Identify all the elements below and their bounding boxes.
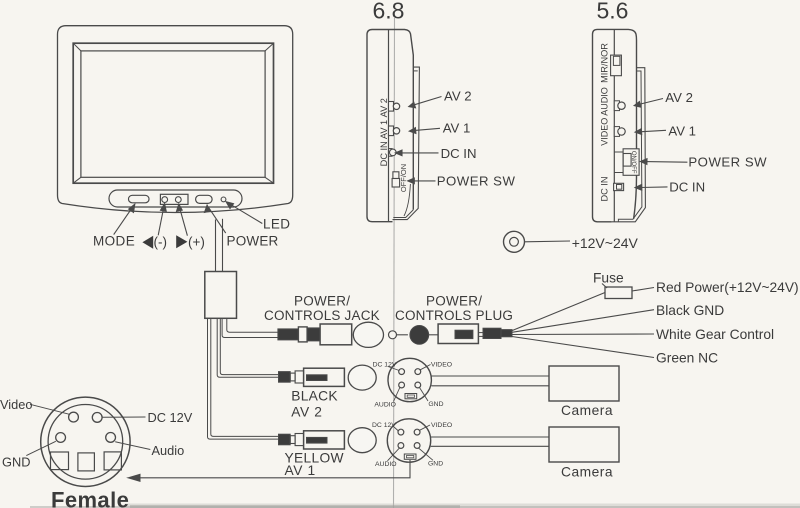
- svg-text:VIDEO AUDIO: VIDEO AUDIO: [600, 87, 610, 146]
- svg-text:AV 1: AV 1: [443, 121, 471, 136]
- svg-text:Camera: Camera: [561, 403, 613, 418]
- svg-text:AV 2: AV 2: [379, 98, 389, 117]
- svg-text:Female: Female: [51, 488, 129, 508]
- svg-text:AV 2: AV 2: [665, 90, 693, 105]
- svg-text:Audio: Audio: [152, 443, 185, 458]
- svg-text:Red Power(+12V~24V): Red Power(+12V~24V): [656, 280, 799, 295]
- svg-text:LED: LED: [263, 217, 290, 232]
- svg-text:Fuse: Fuse: [593, 271, 624, 286]
- svg-text:VIDEO: VIDEO: [431, 422, 452, 429]
- svg-text:AV 2: AV 2: [291, 404, 322, 419]
- svg-text:AV 1: AV 1: [285, 463, 316, 478]
- svg-text:CONTROLS JACK: CONTROLS JACK: [264, 308, 380, 323]
- svg-text:BLACK: BLACK: [291, 389, 338, 404]
- svg-text:+12V~24V: +12V~24V: [572, 235, 639, 251]
- svg-text:GND: GND: [2, 455, 30, 470]
- svg-text:DC 12V: DC 12V: [372, 422, 396, 429]
- svg-text:6.8: 6.8: [373, 0, 405, 24]
- svg-text:POWER/: POWER/: [426, 294, 482, 309]
- svg-text:DC IN: DC IN: [600, 176, 610, 201]
- svg-text:CONTROLS PLUG: CONTROLS PLUG: [395, 308, 513, 323]
- svg-text:OFF/ON: OFF/ON: [399, 164, 408, 192]
- svg-text:AUDIO: AUDIO: [374, 401, 396, 408]
- svg-text:POWER/: POWER/: [294, 294, 350, 309]
- svg-text:POWER SW: POWER SW: [688, 155, 767, 170]
- svg-text:White Gear Control: White Gear Control: [656, 327, 774, 342]
- svg-text:(-): (-): [154, 235, 168, 250]
- svg-text:AV 2: AV 2: [444, 89, 472, 104]
- svg-text:AUDIO: AUDIO: [375, 461, 397, 468]
- svg-text:5.6: 5.6: [597, 0, 629, 24]
- svg-text:Video: Video: [0, 397, 33, 412]
- svg-text:AV 1: AV 1: [668, 124, 696, 139]
- svg-text:MODE: MODE: [93, 233, 135, 248]
- svg-text:POWER SW: POWER SW: [437, 173, 516, 188]
- svg-text:(+): (+): [188, 235, 205, 250]
- svg-text:POWER: POWER: [227, 233, 279, 248]
- svg-text:DC IN: DC IN: [669, 179, 705, 194]
- svg-text:DC 12V: DC 12V: [148, 410, 193, 425]
- svg-text:AV 1: AV 1: [379, 120, 389, 139]
- svg-text:Black GND: Black GND: [656, 303, 724, 318]
- svg-text:GND: GND: [428, 401, 443, 408]
- svg-text:ON/OFF: ON/OFF: [630, 151, 636, 174]
- svg-text:VIDEO: VIDEO: [431, 362, 452, 369]
- svg-text:DC IN: DC IN: [441, 146, 477, 161]
- svg-text:MIR/NOR: MIR/NOR: [600, 43, 610, 83]
- svg-text:Green NC: Green NC: [656, 351, 718, 366]
- svg-text:GND: GND: [428, 461, 443, 468]
- svg-text:Camera: Camera: [561, 465, 613, 480]
- svg-text:DC IN: DC IN: [379, 141, 389, 166]
- svg-text:DC 12V: DC 12V: [373, 361, 397, 368]
